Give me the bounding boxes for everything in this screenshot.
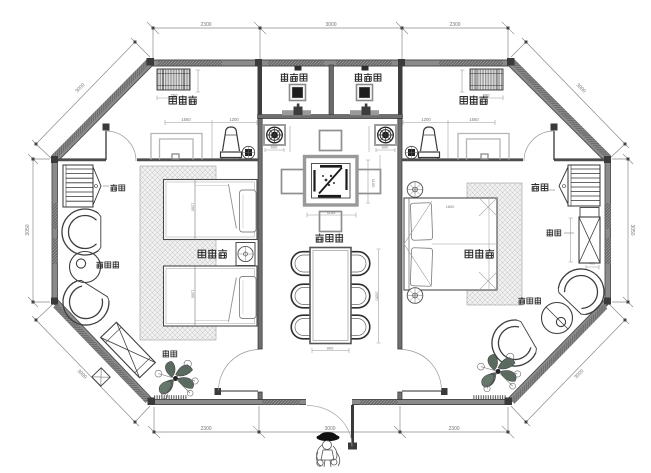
svg-text:2300: 2300 (448, 426, 459, 432)
svg-text:2300: 2300 (449, 22, 460, 28)
svg-text:1200: 1200 (191, 290, 195, 298)
svg-text:3050: 3050 (629, 224, 635, 235)
svg-text:1100: 1100 (371, 179, 376, 188)
svg-text:400: 400 (589, 262, 595, 266)
svg-text:1200: 1200 (421, 117, 431, 122)
svg-text:3000: 3000 (325, 22, 336, 28)
svg-text:1200: 1200 (191, 203, 195, 211)
svg-text:3050: 3050 (25, 224, 31, 235)
svg-text:1100: 1100 (327, 210, 336, 215)
svg-text:600: 600 (271, 145, 278, 150)
svg-text:2300: 2300 (200, 426, 211, 432)
svg-text:750: 750 (171, 93, 179, 98)
svg-text:900: 900 (327, 346, 334, 351)
svg-text:2300: 2300 (200, 22, 211, 28)
svg-text:3000: 3000 (324, 426, 335, 432)
svg-text:1550: 1550 (181, 117, 191, 122)
svg-text:1800: 1800 (446, 205, 454, 209)
svg-text:1200: 1200 (229, 117, 239, 122)
svg-text:1550: 1550 (469, 117, 479, 122)
svg-text:600: 600 (382, 145, 389, 150)
svg-text:2050: 2050 (375, 292, 380, 302)
